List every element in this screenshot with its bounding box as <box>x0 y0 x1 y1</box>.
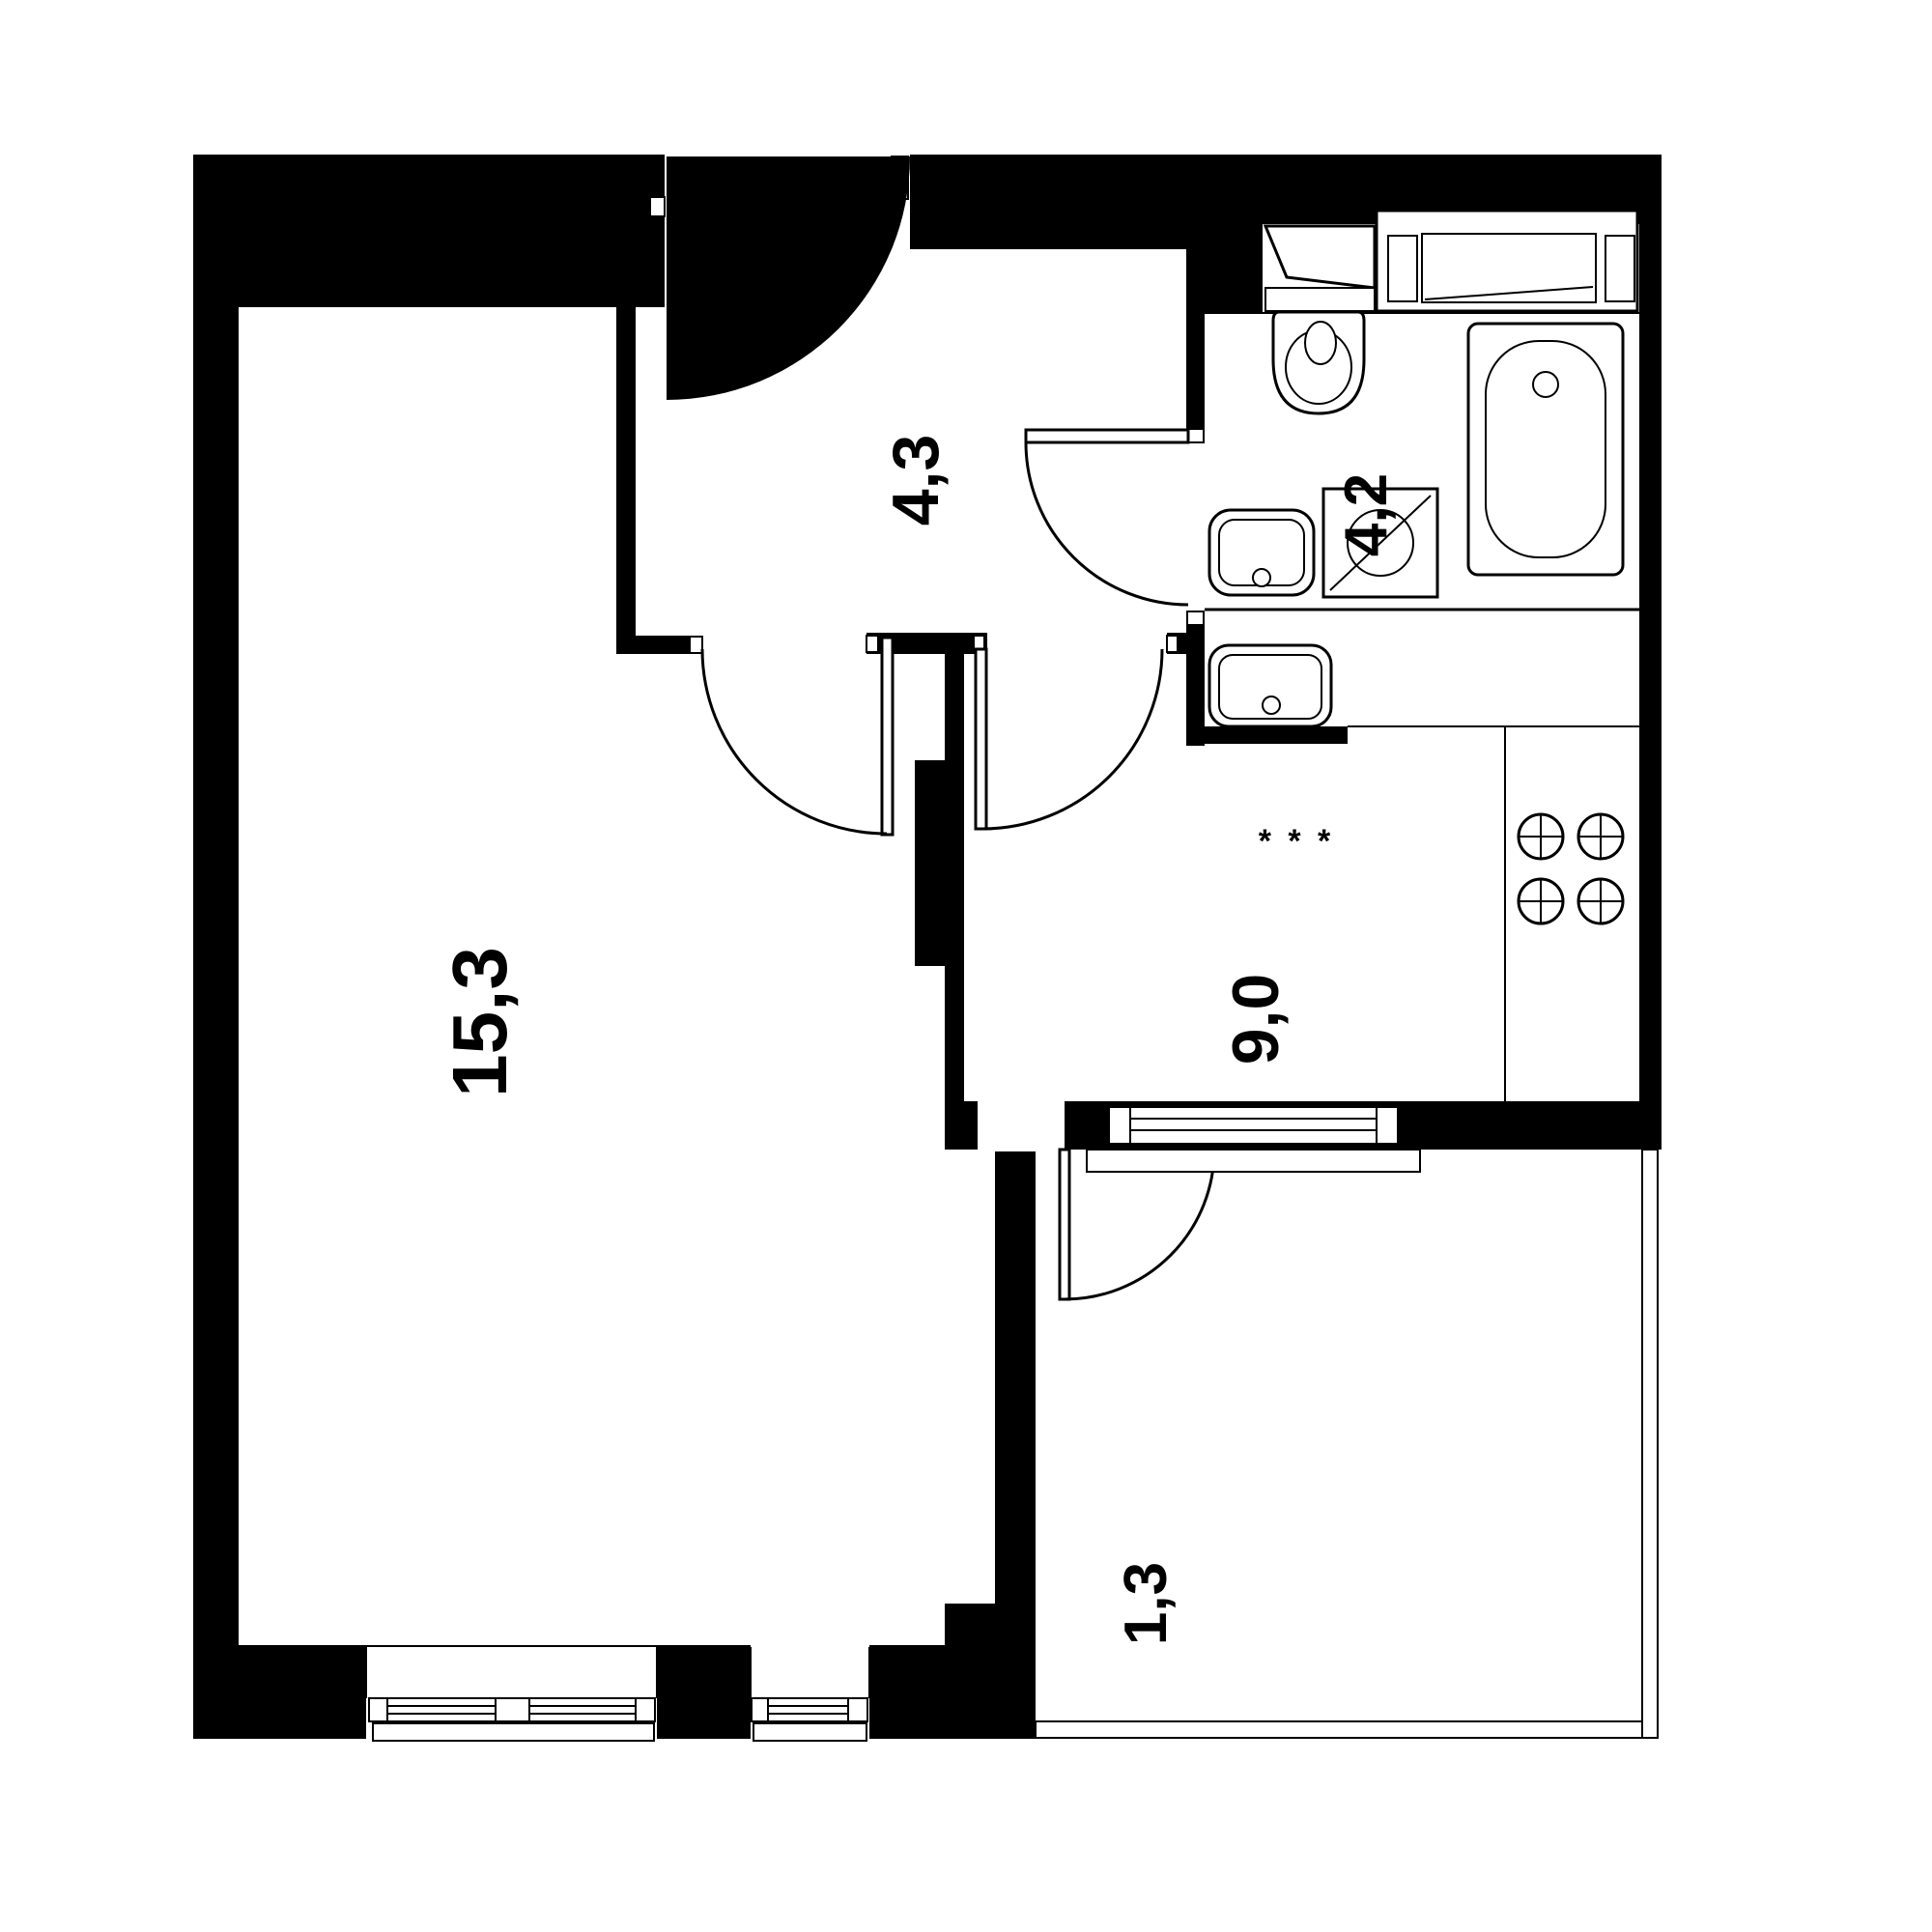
wall-right <box>1639 155 1662 1150</box>
frame-cap <box>636 1698 655 1721</box>
frame-cap <box>848 1698 867 1721</box>
toilet-flush <box>1305 322 1336 364</box>
wall-niche-chunk <box>1205 249 1263 314</box>
window-frame <box>1109 1107 1398 1144</box>
kitchen-door-leaf <box>976 649 986 829</box>
laundry-unit-icon <box>1265 226 1375 288</box>
wall-corner-block <box>945 1604 995 1645</box>
kitchen-sink-drain <box>1263 696 1280 714</box>
cabinet-panel-right <box>1605 236 1634 301</box>
glazing-right <box>1642 1150 1658 1738</box>
floor-plan-canvas: 15,3 4,3 4,2 9,0 1,3 * * * <box>0 0 1932 1932</box>
window-living-narrow <box>751 1647 869 1741</box>
window-sill <box>1087 1150 1420 1172</box>
window-sill <box>753 1723 867 1741</box>
wall-counter-bar <box>1186 726 1348 744</box>
living-door-arc <box>702 649 887 834</box>
wall-partition-block <box>915 760 964 966</box>
washbasin-drain <box>1253 569 1270 586</box>
wall-hall-west <box>616 307 636 654</box>
bathroom-door-jamb-cap-bottom <box>1187 611 1204 625</box>
frame-cap <box>752 1698 768 1721</box>
room-label-kitchen: 9,0 <box>1223 974 1289 1065</box>
cabinet-panel-middle <box>1422 234 1596 302</box>
stove-burners-icon <box>1519 814 1623 923</box>
bathroom-door-arc <box>1026 442 1188 605</box>
window-balcony-band <box>1087 1107 1420 1172</box>
laundry-unit-base <box>1265 288 1375 311</box>
wall-bathroom-west-lower <box>1186 611 1205 746</box>
wall-top-left <box>193 155 665 307</box>
glazing-bottom <box>1036 1721 1658 1738</box>
burner-crosses <box>1519 814 1623 923</box>
frame-cap <box>369 1698 387 1721</box>
balcony-glazing-icon <box>1036 1150 1658 1738</box>
wall-bathroom-west-upper <box>1186 249 1205 442</box>
living-door-jamb-cap <box>690 637 702 653</box>
wall-top-middle <box>910 155 1263 249</box>
floor-plan-drawing <box>0 0 1932 1932</box>
bathtub-drain <box>1533 372 1558 397</box>
hall-bar-cap-left <box>867 636 878 652</box>
bathroom-door-jamb-cap-top <box>1187 429 1204 442</box>
wall-bottom-2 <box>657 1645 751 1739</box>
frame-cap <box>1377 1107 1398 1144</box>
walls <box>193 155 1662 1739</box>
bathroom-door-leaf <box>1026 430 1188 442</box>
wall-left <box>193 155 239 1647</box>
balcony-doorway-gap <box>978 1099 1065 1151</box>
room-label-balcony: 1,3 <box>1117 1562 1177 1645</box>
frame-pier <box>496 1698 529 1721</box>
room-label-living: 15,3 <box>441 947 519 1097</box>
kitchen-door-arc <box>982 649 1162 829</box>
room-label-hallway: 4,3 <box>883 435 949 526</box>
bathroom-fixtures <box>1209 211 1639 597</box>
kitchen-marks: * * * <box>1259 825 1335 858</box>
window-sill <box>373 1723 654 1741</box>
entry-jamb-cap-left <box>650 197 665 216</box>
wall-bottom-3 <box>869 1645 1036 1739</box>
balcony-door-leaf <box>1060 1150 1069 1299</box>
cabinet-panel-left <box>1388 236 1417 301</box>
kitchen-door-jamb-cap-right <box>1167 636 1178 652</box>
wall-bottom-1 <box>193 1645 366 1739</box>
entry-door-fan-icon <box>667 156 910 400</box>
frame-cap <box>1109 1107 1130 1144</box>
room-label-bathroom: 4,2 <box>1337 473 1397 556</box>
living-door-leaf <box>882 638 893 835</box>
